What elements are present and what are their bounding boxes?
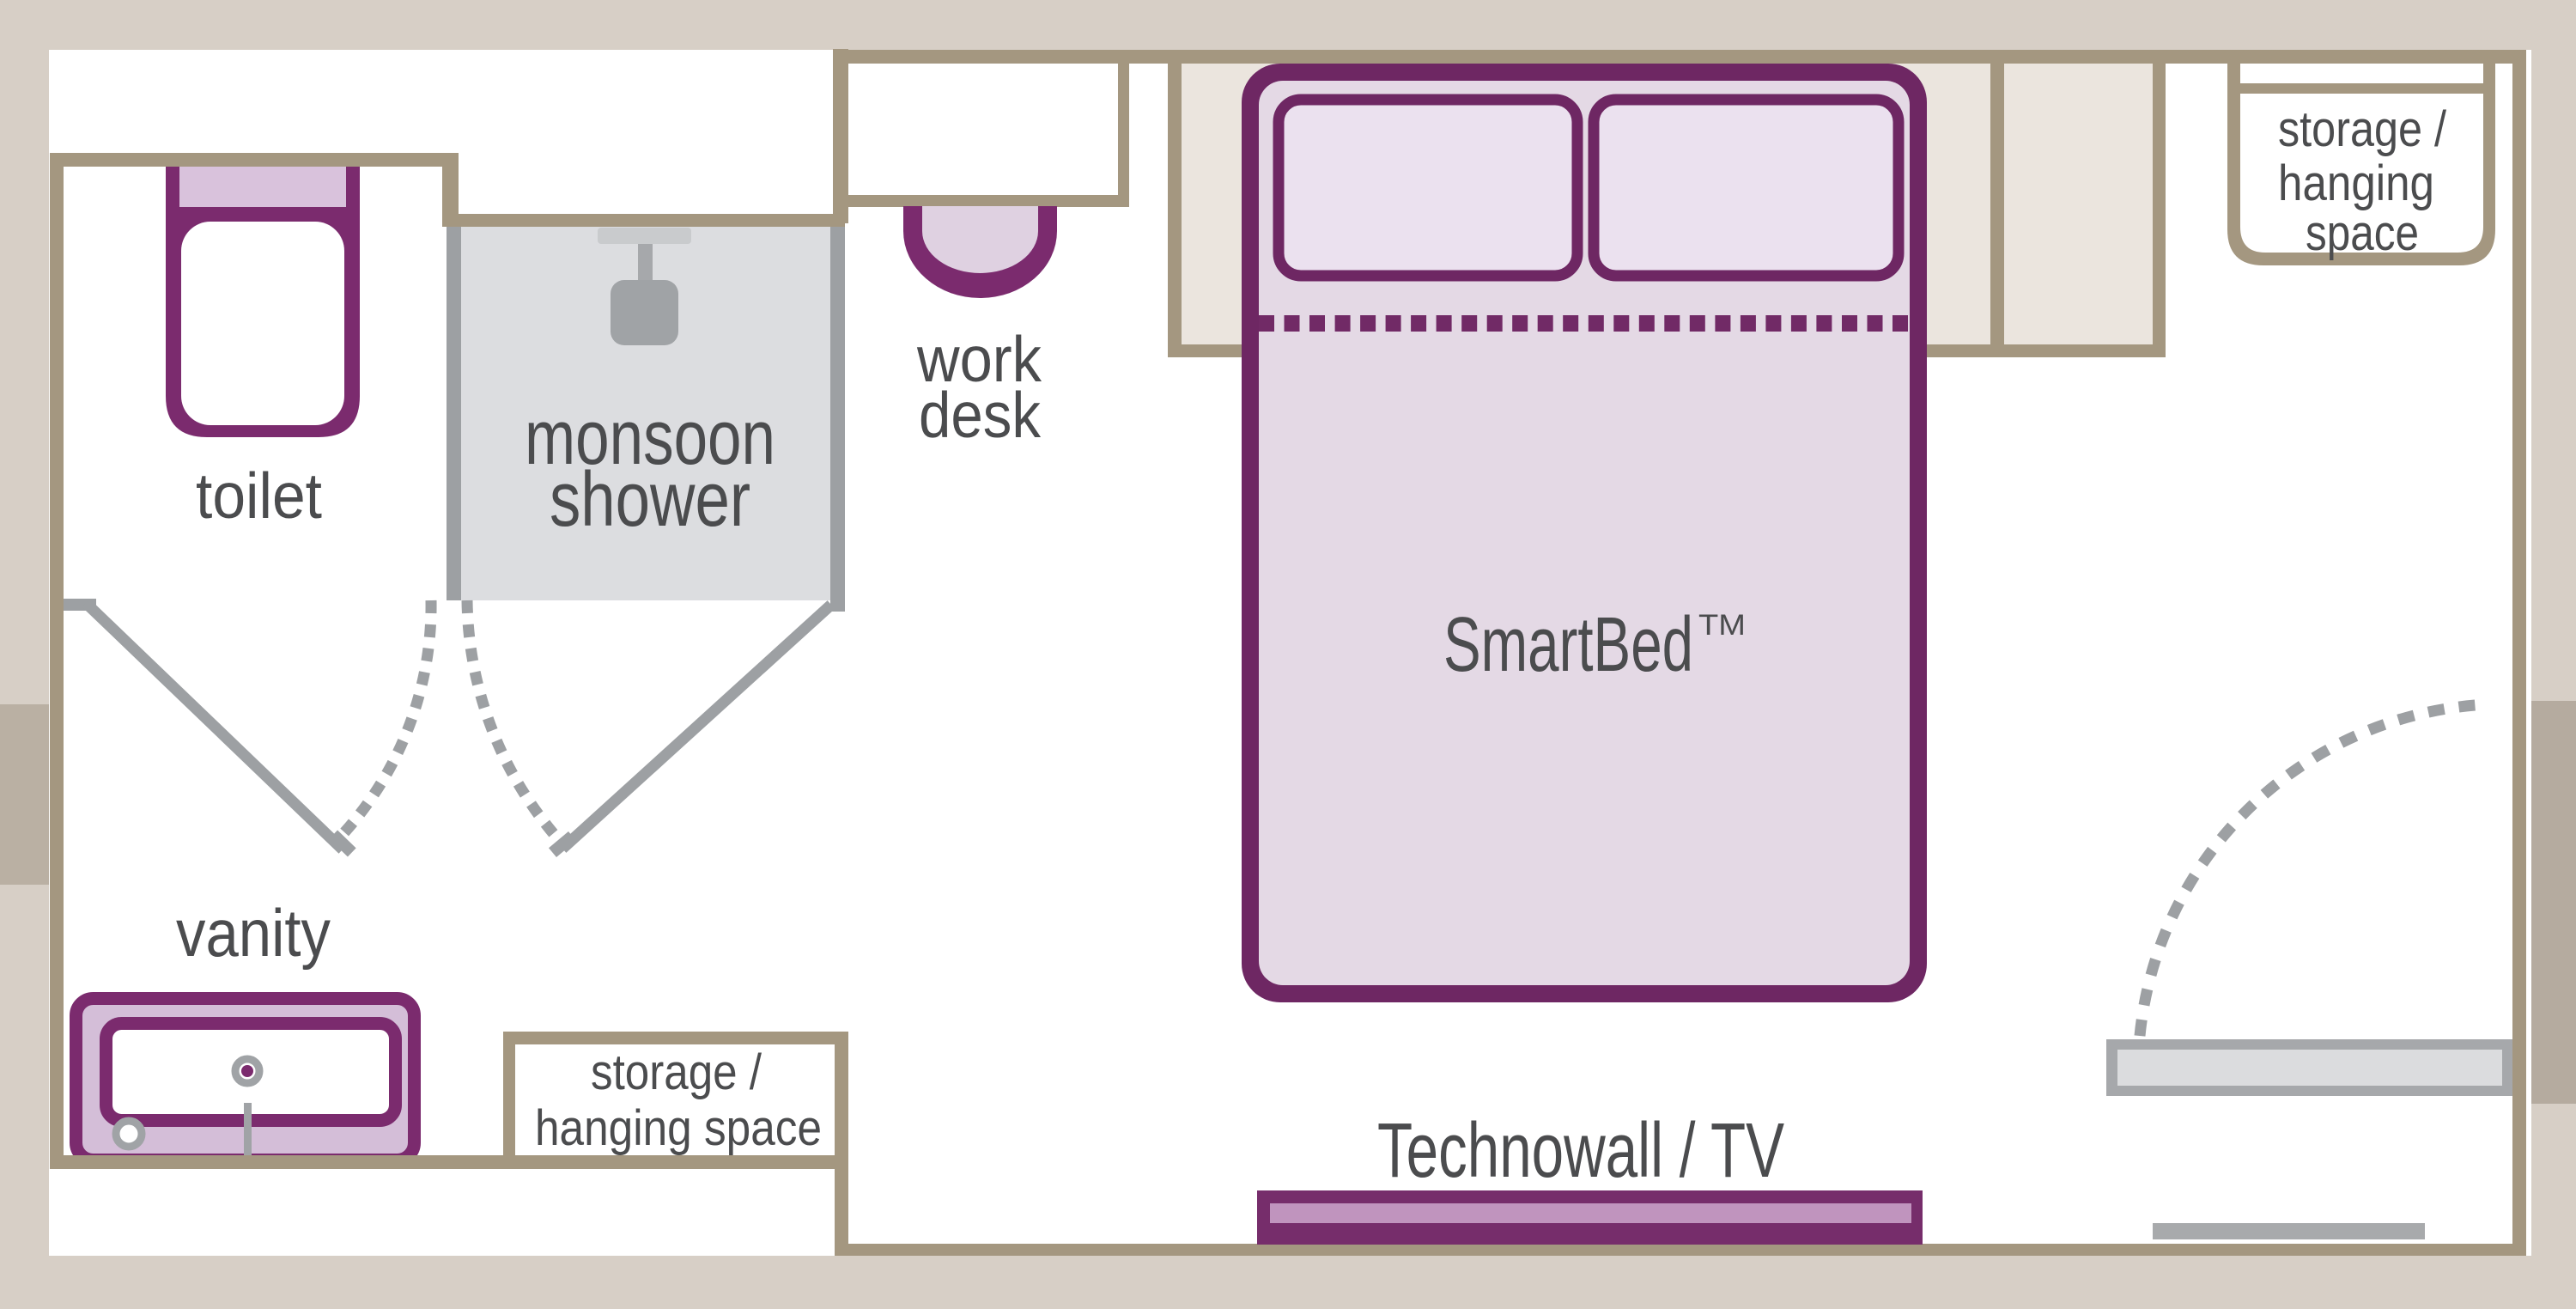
svg-text:TM: TM [1698,609,1746,642]
svg-text:hanging: hanging [2278,155,2434,211]
svg-text:storage /: storage / [2278,101,2447,157]
svg-text:SmartBed: SmartBed [1443,602,1693,688]
svg-text:storage /: storage / [591,1044,762,1100]
svg-text:toilet: toilet [196,460,322,532]
svg-text:hanging space: hanging space [535,1100,822,1156]
svg-text:shower: shower [550,457,750,543]
svg-text:desk: desk [919,379,1041,451]
svg-text:space: space [2306,205,2419,261]
svg-text:vanity: vanity [176,895,331,971]
svg-text:Technowall / TV: Technowall / TV [1377,1108,1784,1194]
